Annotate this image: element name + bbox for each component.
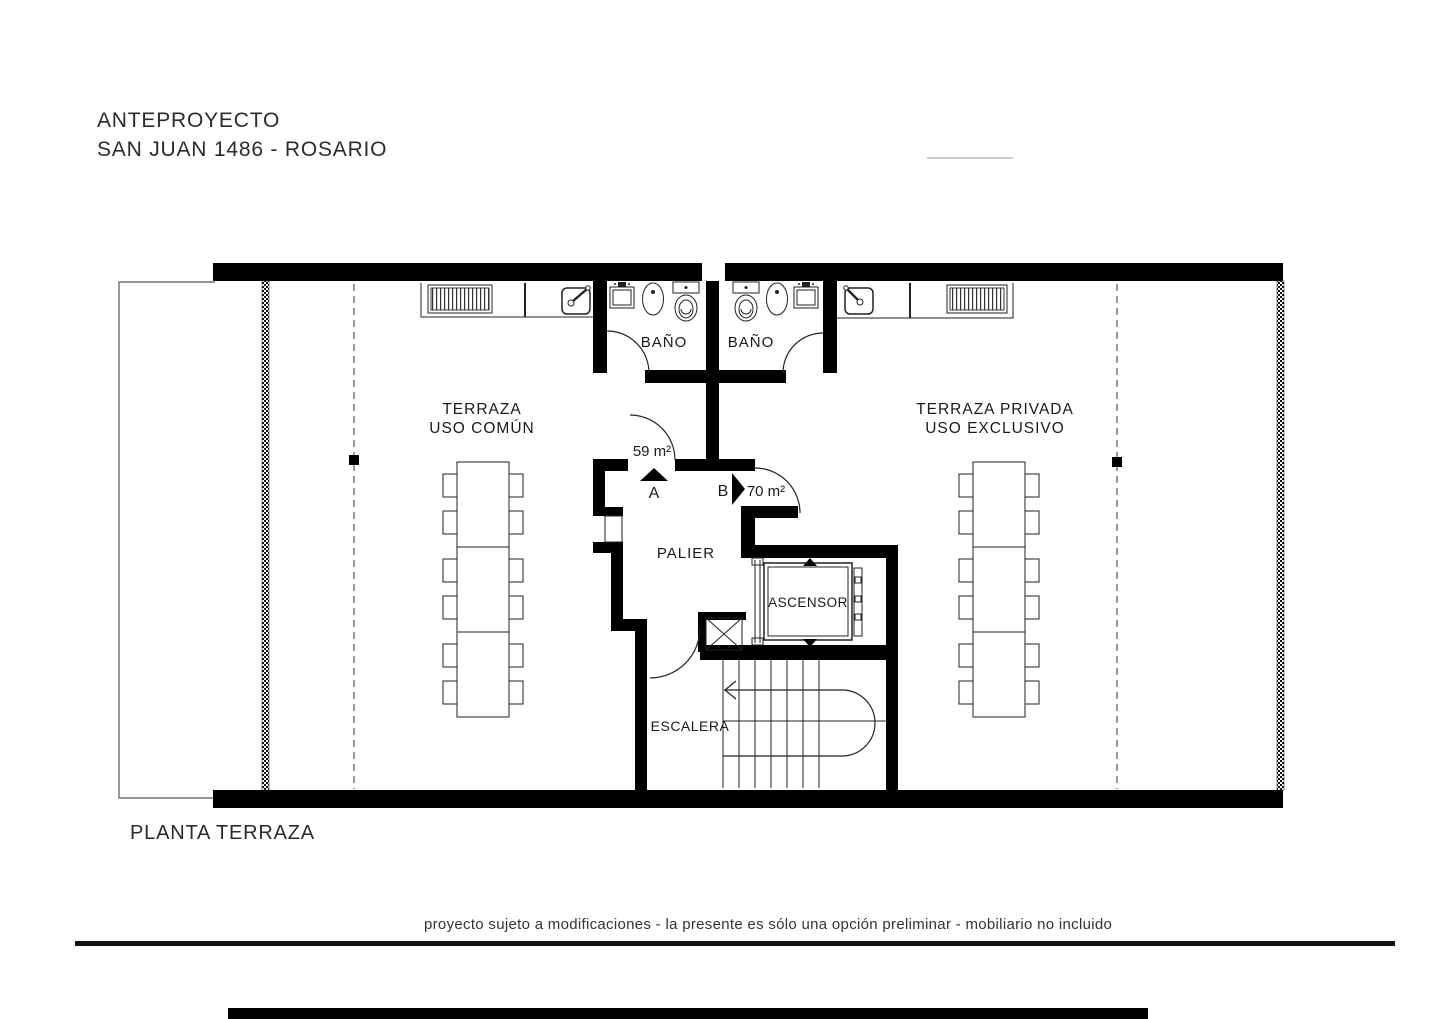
shaft-north-wall (698, 612, 746, 620)
label-terrace-common-2: USO COMÚN (429, 420, 534, 437)
label-terrace-private-2: USO EXCLUSIVO (925, 420, 1065, 437)
bottom-wall (213, 790, 1283, 808)
railing-right (1277, 281, 1284, 790)
bath-sink-left (610, 282, 634, 308)
railing-left (262, 281, 269, 790)
column-right (1112, 457, 1122, 467)
palier-south-wall (611, 619, 647, 631)
unit-b-wall-stub (741, 506, 798, 518)
label-terrace-common-1: TERRAZA (442, 401, 521, 418)
counter-sink-right (844, 286, 873, 314)
grill-left-hatch (431, 288, 489, 310)
duct-niche (605, 516, 622, 542)
central-dividing-wall (706, 281, 719, 471)
bidet-left (643, 283, 664, 315)
stair-walk-line (723, 690, 875, 756)
toilet-left (673, 282, 699, 321)
entry-arrow-unit-a (640, 468, 668, 481)
palier-west-wall-upper (593, 459, 605, 516)
label-unit-a-area: 59 m² (633, 443, 671, 460)
label-bathroom-left: BAÑO (641, 334, 688, 351)
label-unit-b-area: 70 m² (747, 483, 785, 500)
bath-right-east-wall (823, 281, 837, 373)
door-arc-bath-right (783, 333, 823, 373)
label-stairs: ESCALERA (651, 718, 730, 734)
grill-right-hatch (950, 288, 1004, 310)
duct-south-stub (593, 542, 623, 553)
annex-outline (119, 282, 215, 798)
floor-plan-drawing: BAÑO BAÑO TERRAZA USO COMÚN TERRAZA PRIV… (0, 0, 1440, 1019)
bidet-right (767, 283, 788, 315)
elevator-north-wall (741, 545, 898, 558)
palier-west-wall-lower (611, 553, 623, 619)
table-left (443, 462, 523, 717)
label-terrace-private-1: TERRAZA PRIVADA (916, 401, 1074, 418)
bath-sink-right (794, 282, 818, 308)
label-bathroom-right: BAÑO (728, 334, 775, 351)
top-wall-right (725, 263, 1283, 281)
floor-plan-sheet: ANTEPROYECTO SAN JUAN 1486 - ROSARIO PLA… (0, 0, 1440, 1019)
top-wall-left (213, 263, 702, 281)
stairs-west-wall (635, 631, 647, 790)
projection-lines (354, 284, 1117, 789)
bath-left-west-wall (593, 281, 607, 373)
unit-ab-wall (675, 459, 755, 471)
label-landing: PALIER (657, 545, 715, 562)
stairs-north-wall (700, 645, 898, 660)
chairs-left-table (443, 474, 523, 704)
toilet-right (733, 282, 759, 321)
label-elevator: ASCENSOR (768, 595, 848, 610)
label-unit-a: A (649, 485, 660, 502)
stair-treads (723, 660, 819, 788)
chairs-right-table (959, 474, 1039, 704)
counter-sink-left (562, 286, 590, 314)
entry-arrow-unit-b (732, 473, 745, 505)
duct-north-stub (605, 507, 623, 516)
label-unit-b: B (718, 483, 729, 500)
railings (262, 281, 1284, 790)
column-left (349, 455, 359, 465)
table-right (959, 462, 1039, 717)
core-east-wall (886, 545, 898, 790)
stairs (723, 660, 886, 788)
door-arc-stairs (650, 628, 700, 678)
